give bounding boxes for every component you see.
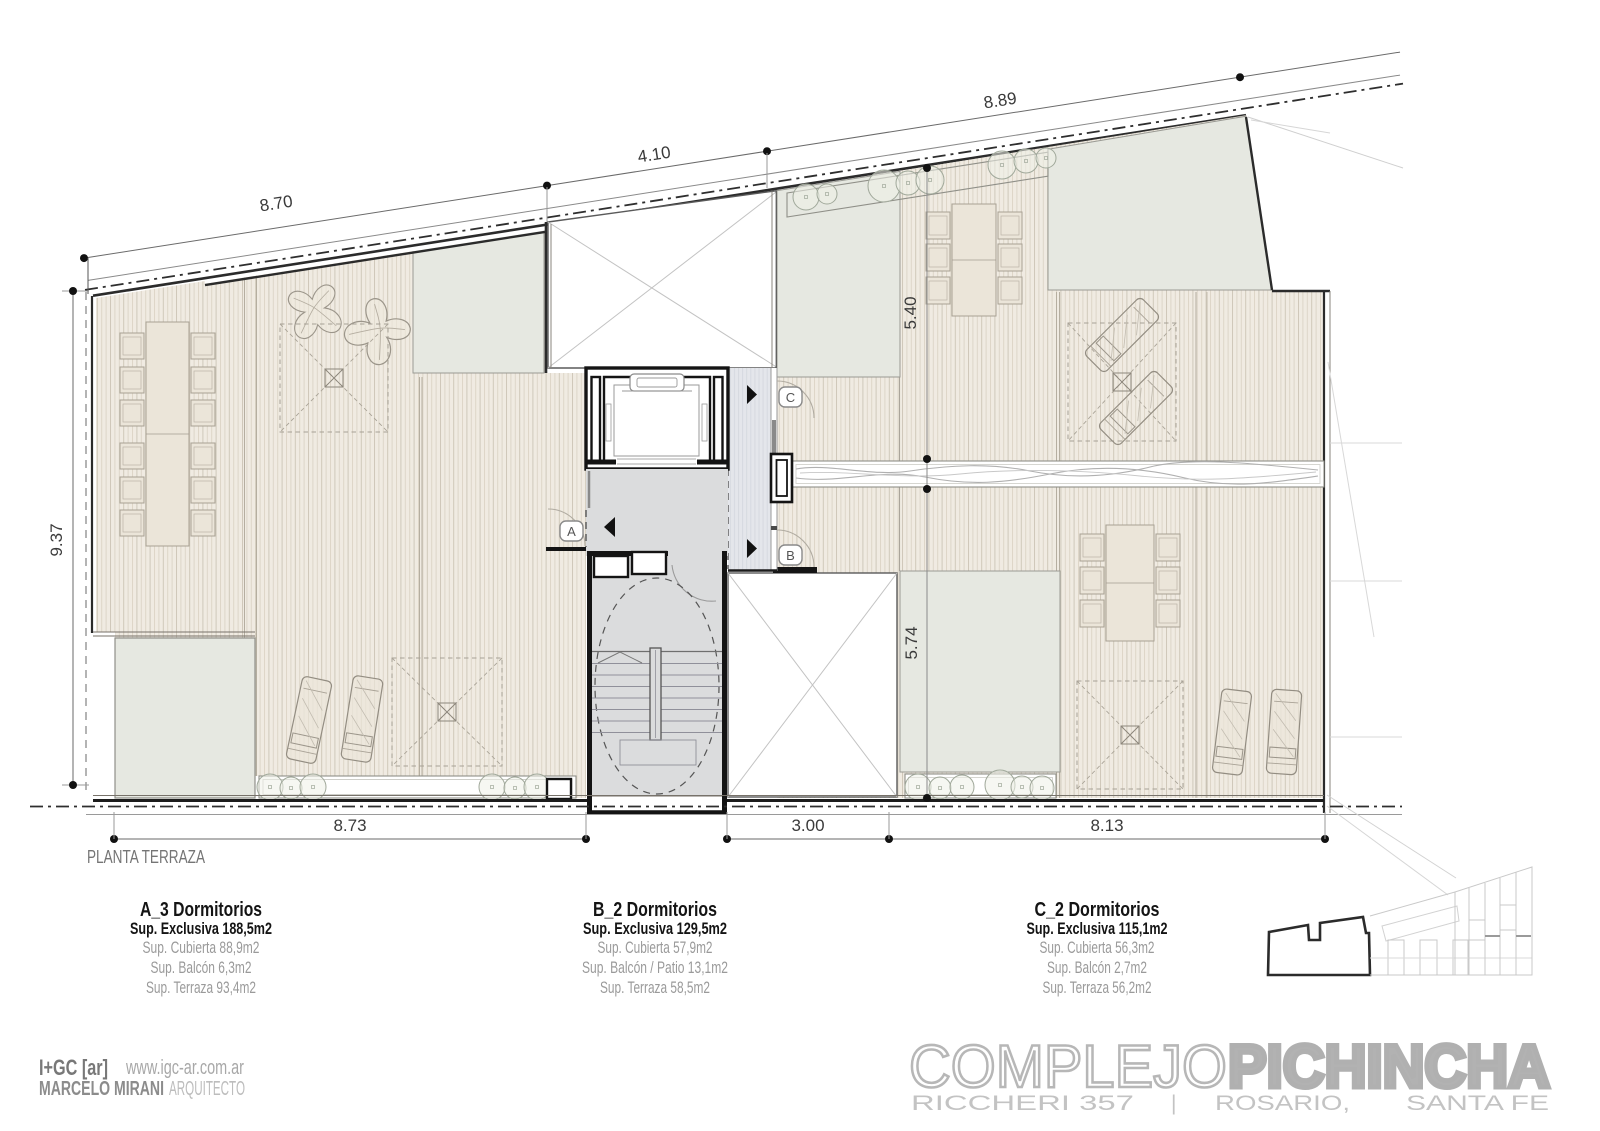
svg-text:Sup. Cubierta 88,9m2: Sup. Cubierta 88,9m2: [143, 938, 260, 957]
svg-text:C: C: [786, 390, 795, 405]
svg-text:8.73: 8.73: [333, 816, 366, 835]
svg-text:ROSARIO,: ROSARIO,: [1215, 1092, 1350, 1115]
svg-text:Sup. Balcón 2,7m2: Sup. Balcón 2,7m2: [1047, 958, 1147, 977]
svg-text:SANTA FE: SANTA FE: [1406, 1092, 1549, 1115]
svg-text:Sup. Exclusiva 115,1m2: Sup. Exclusiva 115,1m2: [1027, 919, 1168, 938]
svg-text:A_3 Dormitorios: A_3 Dormitorios: [140, 899, 262, 921]
svg-text:www.igc-ar.com.ar: www.igc-ar.com.ar: [125, 1057, 244, 1079]
svg-text:9.37: 9.37: [47, 523, 66, 556]
svg-text:Sup. Balcón 6,3m2: Sup. Balcón 6,3m2: [151, 958, 252, 977]
svg-text:RICCHERI 357: RICCHERI 357: [911, 1092, 1134, 1115]
svg-text:Sup. Terraza 56,2m2: Sup. Terraza 56,2m2: [1043, 978, 1152, 997]
svg-text:COMPLEJO: COMPLEJO: [909, 1033, 1227, 1100]
svg-text:Sup. Balcón / Patio 13,1m2: Sup. Balcón / Patio 13,1m2: [582, 958, 728, 977]
svg-text:5.74: 5.74: [902, 626, 921, 659]
svg-text:ARQUITECTO: ARQUITECTO: [169, 1078, 245, 1100]
svg-text:PLANTA TERRAZA: PLANTA TERRAZA: [87, 847, 205, 867]
svg-text:PICHINCHA: PICHINCHA: [1228, 1033, 1550, 1100]
svg-text:I+GC [ar]: I+GC [ar]: [39, 1055, 108, 1080]
svg-text:C_2 Dormitorios: C_2 Dormitorios: [1035, 899, 1160, 921]
svg-text:Sup. Exclusiva 188,5m2: Sup. Exclusiva 188,5m2: [130, 919, 272, 938]
svg-text:3.00: 3.00: [791, 816, 824, 835]
svg-text:MARCELO MIRANI: MARCELO MIRANI: [39, 1078, 164, 1100]
svg-text:Sup. Exclusiva 129,5m2: Sup. Exclusiva 129,5m2: [583, 919, 727, 938]
svg-text:A: A: [567, 524, 576, 539]
svg-text:8.13: 8.13: [1090, 816, 1123, 835]
svg-text:5.40: 5.40: [901, 296, 920, 329]
svg-text:Sup. Cubierta 56,3m2: Sup. Cubierta 56,3m2: [1040, 938, 1155, 957]
svg-text:Sup. Terraza 93,4m2: Sup. Terraza 93,4m2: [146, 978, 256, 997]
svg-text:B: B: [786, 548, 795, 563]
svg-text:B_2 Dormitorios: B_2 Dormitorios: [593, 899, 717, 921]
svg-text:|: |: [1171, 1092, 1176, 1115]
svg-text:Sup. Cubierta 57,9m2: Sup. Cubierta 57,9m2: [598, 938, 713, 957]
svg-text:Sup. Terraza 58,5m2: Sup. Terraza 58,5m2: [600, 978, 710, 997]
